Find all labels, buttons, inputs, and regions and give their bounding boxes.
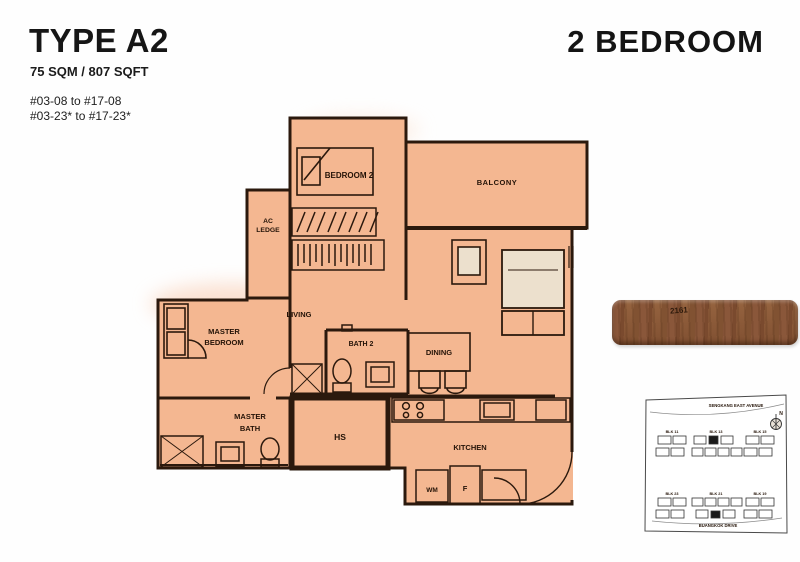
- label-wm: WM: [426, 487, 438, 494]
- svg-text:BLK 23: BLK 23: [665, 492, 678, 496]
- label-bath2: BATH 2: [349, 341, 374, 348]
- label-living: LIVING: [286, 310, 311, 319]
- site-map: SENGKANG EAST AVENUE BUANGKOK DRIVE N BL…: [636, 386, 798, 548]
- page-title: TYPE A2: [29, 22, 169, 60]
- label-mbath-2: BATH: [240, 424, 260, 433]
- svg-text:BLK 21: BLK 21: [709, 492, 722, 496]
- unit-range-1: #03-08 to #17-08: [30, 94, 121, 108]
- unit-range-2: #03-23* to #17-23*: [30, 109, 131, 123]
- svg-text:BLK 13: BLK 13: [709, 430, 722, 434]
- label-hs: HS: [334, 432, 346, 442]
- door-opening-outside: [573, 452, 579, 500]
- bedroom-count-title: 2 BEDROOM: [567, 24, 764, 60]
- label-master-1: MASTER: [208, 327, 240, 336]
- svg-text:BLK 11: BLK 11: [666, 430, 679, 434]
- label-ac-2: LEDGE: [256, 227, 280, 234]
- wood-plank: 2161: [612, 300, 798, 345]
- svg-text:BLK 15: BLK 15: [753, 430, 766, 434]
- highlight-stack-23: [711, 511, 720, 518]
- area-label: 75 SQM / 807 SQFT: [30, 64, 149, 79]
- floorplan-page: TYPE A2 75 SQM / 807 SQFT #03-08 to #17-…: [0, 0, 800, 562]
- street-top-label: SENGKANG EAST AVENUE: [709, 403, 764, 408]
- label-fridge: F: [463, 484, 468, 493]
- label-ac-1: AC: [263, 218, 273, 225]
- highlight-stack-08: [709, 436, 718, 444]
- label-master-2: BEDROOM: [204, 338, 243, 347]
- street-bottom-label: BUANGKOK DRIVE: [699, 523, 738, 528]
- label-bedroom2: BEDROOM 2: [325, 171, 374, 180]
- label-kitchen: KITCHEN: [453, 443, 486, 452]
- label-balcony: BALCONY: [477, 178, 518, 187]
- svg-text:BLK 19: BLK 19: [753, 492, 766, 496]
- north-label: N: [779, 411, 783, 417]
- label-mbath-1: MASTER: [234, 412, 266, 421]
- wood-plank-label: 2161: [670, 305, 688, 315]
- floorplan-drawing: BEDROOM 2 BALCONY AC LEDGE LIVING MASTER…: [140, 100, 600, 530]
- label-dining: DINING: [426, 348, 452, 357]
